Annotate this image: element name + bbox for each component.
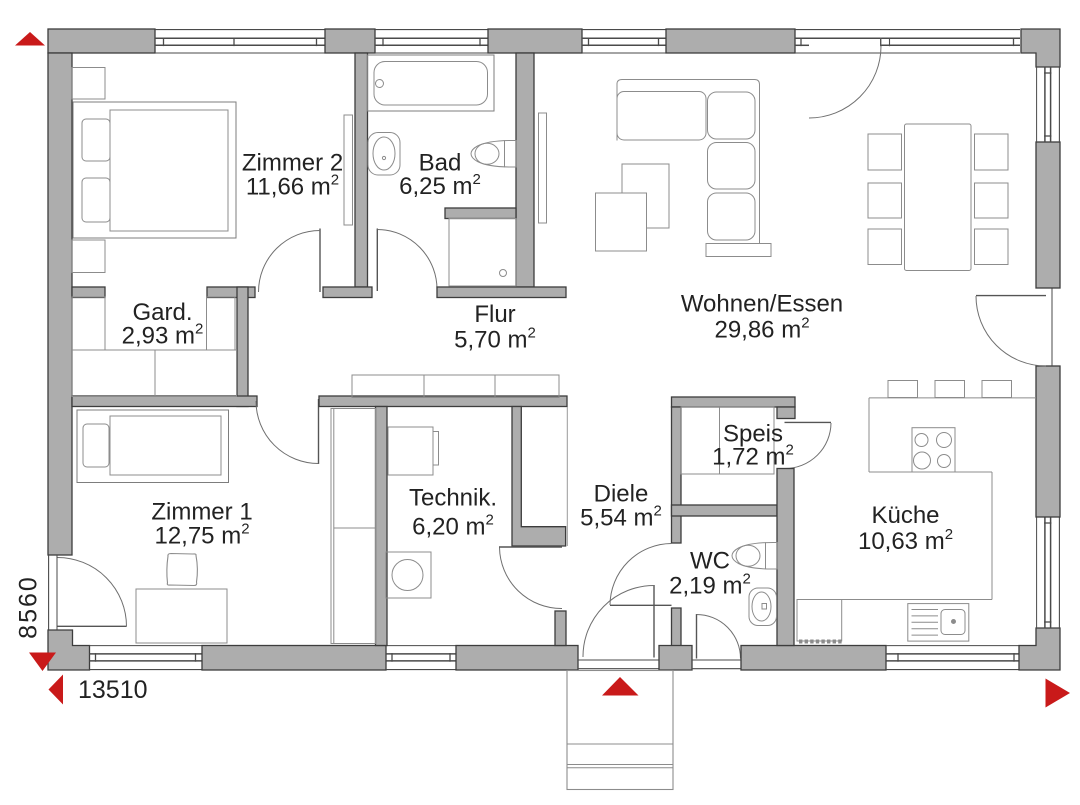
svg-text:6,20 m2: 6,20 m2: [412, 512, 494, 541]
svg-text:Zimmer 1: Zimmer 1: [151, 499, 252, 526]
svg-text:10,63 m2: 10,63 m2: [858, 526, 953, 555]
svg-text:2,93 m2: 2,93 m2: [122, 321, 204, 350]
svg-text:1,72 m2: 1,72 m2: [712, 442, 794, 471]
svg-text:Technik.: Technik.: [409, 485, 497, 512]
svg-text:8560: 8560: [15, 575, 43, 639]
svg-text:Küche: Küche: [871, 502, 939, 529]
svg-text:2,19 m2: 2,19 m2: [669, 571, 751, 600]
svg-text:5,70 m2: 5,70 m2: [454, 325, 536, 354]
svg-text:11,66 m2: 11,66 m2: [246, 172, 339, 201]
svg-text:5,54 m2: 5,54 m2: [580, 503, 662, 532]
svg-text:12,75 m2: 12,75 m2: [154, 521, 249, 550]
svg-text:Zimmer 2: Zimmer 2: [242, 150, 343, 177]
svg-text:WC: WC: [690, 548, 730, 575]
svg-text:Wohnen/Essen: Wohnen/Essen: [681, 291, 843, 318]
svg-text:Flur: Flur: [474, 301, 515, 328]
svg-text:13510: 13510: [78, 676, 148, 704]
svg-text:6,25 m2: 6,25 m2: [399, 171, 481, 200]
svg-text:29,86 m2: 29,86 m2: [714, 315, 809, 344]
svg-text:Diele: Diele: [594, 481, 649, 508]
